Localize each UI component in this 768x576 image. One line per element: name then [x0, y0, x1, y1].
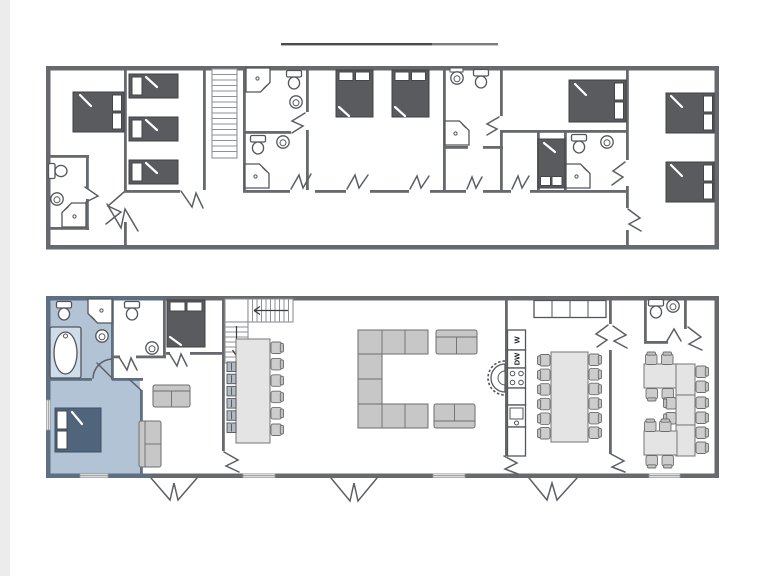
- wall-segment: [243, 131, 291, 134]
- toilet: [287, 71, 302, 90]
- wall-segment: [626, 230, 629, 249]
- wall-segment: [644, 296, 647, 343]
- kitchen-counter: [508, 388, 526, 405]
- sink: [451, 72, 463, 84]
- chair: [271, 408, 284, 420]
- kitchen-sink: [508, 405, 526, 427]
- wall-segment: [203, 66, 206, 190]
- dishwasher-label: DW: [513, 352, 522, 365]
- bathtub: [50, 327, 81, 378]
- sink: [667, 300, 679, 312]
- loveseat: [434, 404, 475, 428]
- wall-segment: [86, 155, 89, 189]
- chair: [646, 456, 658, 469]
- wall-segment: [530, 190, 626, 193]
- chair: [538, 384, 551, 396]
- bench-chair: [227, 374, 236, 384]
- single-bed: [129, 117, 178, 141]
- double-bed: [666, 93, 714, 133]
- loveseat: [436, 330, 477, 354]
- loveseat: [139, 421, 161, 467]
- floor-plan-image: W DW: [0, 0, 768, 576]
- chair: [664, 398, 677, 410]
- page-background: [0, 0, 768, 576]
- chair: [646, 389, 658, 402]
- wall-segment: [46, 155, 89, 158]
- wall-segment: [190, 352, 225, 355]
- wall-segment: [609, 296, 612, 324]
- double-bed: [55, 408, 101, 452]
- chair: [696, 442, 709, 454]
- wall-segment: [136, 356, 166, 359]
- chair: [696, 381, 709, 393]
- chair: [696, 427, 709, 439]
- sink: [290, 96, 302, 108]
- window: [46, 400, 50, 430]
- chair: [271, 375, 284, 387]
- wall-segment: [500, 130, 626, 133]
- wall-segment: [500, 132, 503, 190]
- loveseat: [153, 385, 190, 407]
- wall-segment: [626, 186, 629, 208]
- toilet: [474, 70, 489, 89]
- single-bed: [129, 160, 178, 184]
- sink: [146, 342, 158, 354]
- wall-segment: [684, 296, 687, 329]
- bench-chair: [227, 423, 236, 433]
- chair: [589, 412, 602, 424]
- dining-table: [644, 364, 677, 388]
- toilet: [649, 300, 664, 319]
- wall-segment: [163, 296, 166, 358]
- sink: [601, 136, 613, 148]
- chair: [589, 383, 602, 395]
- window: [649, 474, 680, 478]
- wall-segment: [609, 350, 612, 454]
- wall-segment: [715, 296, 720, 478]
- chair: [696, 366, 709, 378]
- wall-segment: [443, 146, 468, 149]
- chair: [662, 456, 674, 469]
- dining-table: [676, 395, 695, 425]
- single-bed: [129, 74, 178, 98]
- wall-segment: [430, 190, 466, 193]
- wall-segment: [46, 245, 719, 250]
- toilet: [49, 164, 68, 179]
- chair: [660, 419, 672, 432]
- sink: [277, 136, 289, 148]
- double-bed: [336, 70, 373, 117]
- chair: [538, 369, 551, 381]
- toilet: [57, 302, 72, 321]
- dining-table: [676, 364, 695, 395]
- left-margin-strip: [0, 0, 10, 576]
- double-bed: [73, 92, 124, 132]
- wall-segment: [46, 296, 51, 478]
- chair: [538, 413, 551, 425]
- chair: [696, 397, 709, 409]
- chair: [646, 352, 658, 365]
- wall-segment: [644, 341, 668, 344]
- kitchen-counter: [508, 427, 526, 456]
- staircase-upper: [212, 69, 237, 158]
- wall-segment: [715, 66, 720, 250]
- top-divider-line: [281, 43, 498, 45]
- wall-segment: [306, 66, 309, 112]
- wall-segment: [243, 190, 290, 193]
- double-bed: [666, 162, 714, 202]
- wall-segment: [46, 66, 719, 71]
- sink: [51, 193, 63, 205]
- dining-table: [644, 431, 677, 455]
- washer-label: W: [513, 336, 522, 344]
- wall-segment: [222, 296, 225, 451]
- chair: [589, 427, 602, 439]
- bench-chair: [227, 386, 236, 396]
- double-bed: [392, 70, 429, 117]
- sink: [96, 330, 108, 342]
- stove: [508, 368, 526, 388]
- chair: [271, 358, 284, 370]
- chair: [645, 419, 657, 432]
- wall-segment: [500, 66, 503, 116]
- bench-chair: [227, 399, 236, 409]
- wall-segment: [370, 190, 409, 193]
- double-bed: [167, 300, 205, 347]
- chair: [589, 354, 602, 366]
- wall-segment: [112, 378, 143, 381]
- chair: [271, 391, 284, 403]
- chair: [538, 428, 551, 440]
- chair: [589, 369, 602, 381]
- chair: [696, 412, 709, 424]
- toilet: [572, 135, 587, 154]
- chair: [538, 398, 551, 410]
- chair: [271, 424, 284, 436]
- single-bed: [538, 139, 565, 188]
- window: [80, 474, 108, 478]
- window: [433, 474, 465, 478]
- wall-segment: [315, 190, 346, 193]
- toilet: [251, 136, 266, 155]
- chair: [662, 352, 674, 365]
- toilet: [125, 302, 140, 321]
- bench-chair: [227, 362, 236, 372]
- wall-segment: [483, 146, 503, 149]
- chair: [538, 355, 551, 367]
- chair: [589, 398, 602, 410]
- wall-segment: [124, 190, 180, 193]
- window: [243, 474, 275, 478]
- double-bed: [569, 80, 626, 122]
- wall-segment: [124, 222, 127, 247]
- wall-segment: [483, 190, 511, 193]
- dining-table: [676, 425, 695, 456]
- bench-chair: [227, 411, 236, 421]
- chair: [271, 342, 284, 354]
